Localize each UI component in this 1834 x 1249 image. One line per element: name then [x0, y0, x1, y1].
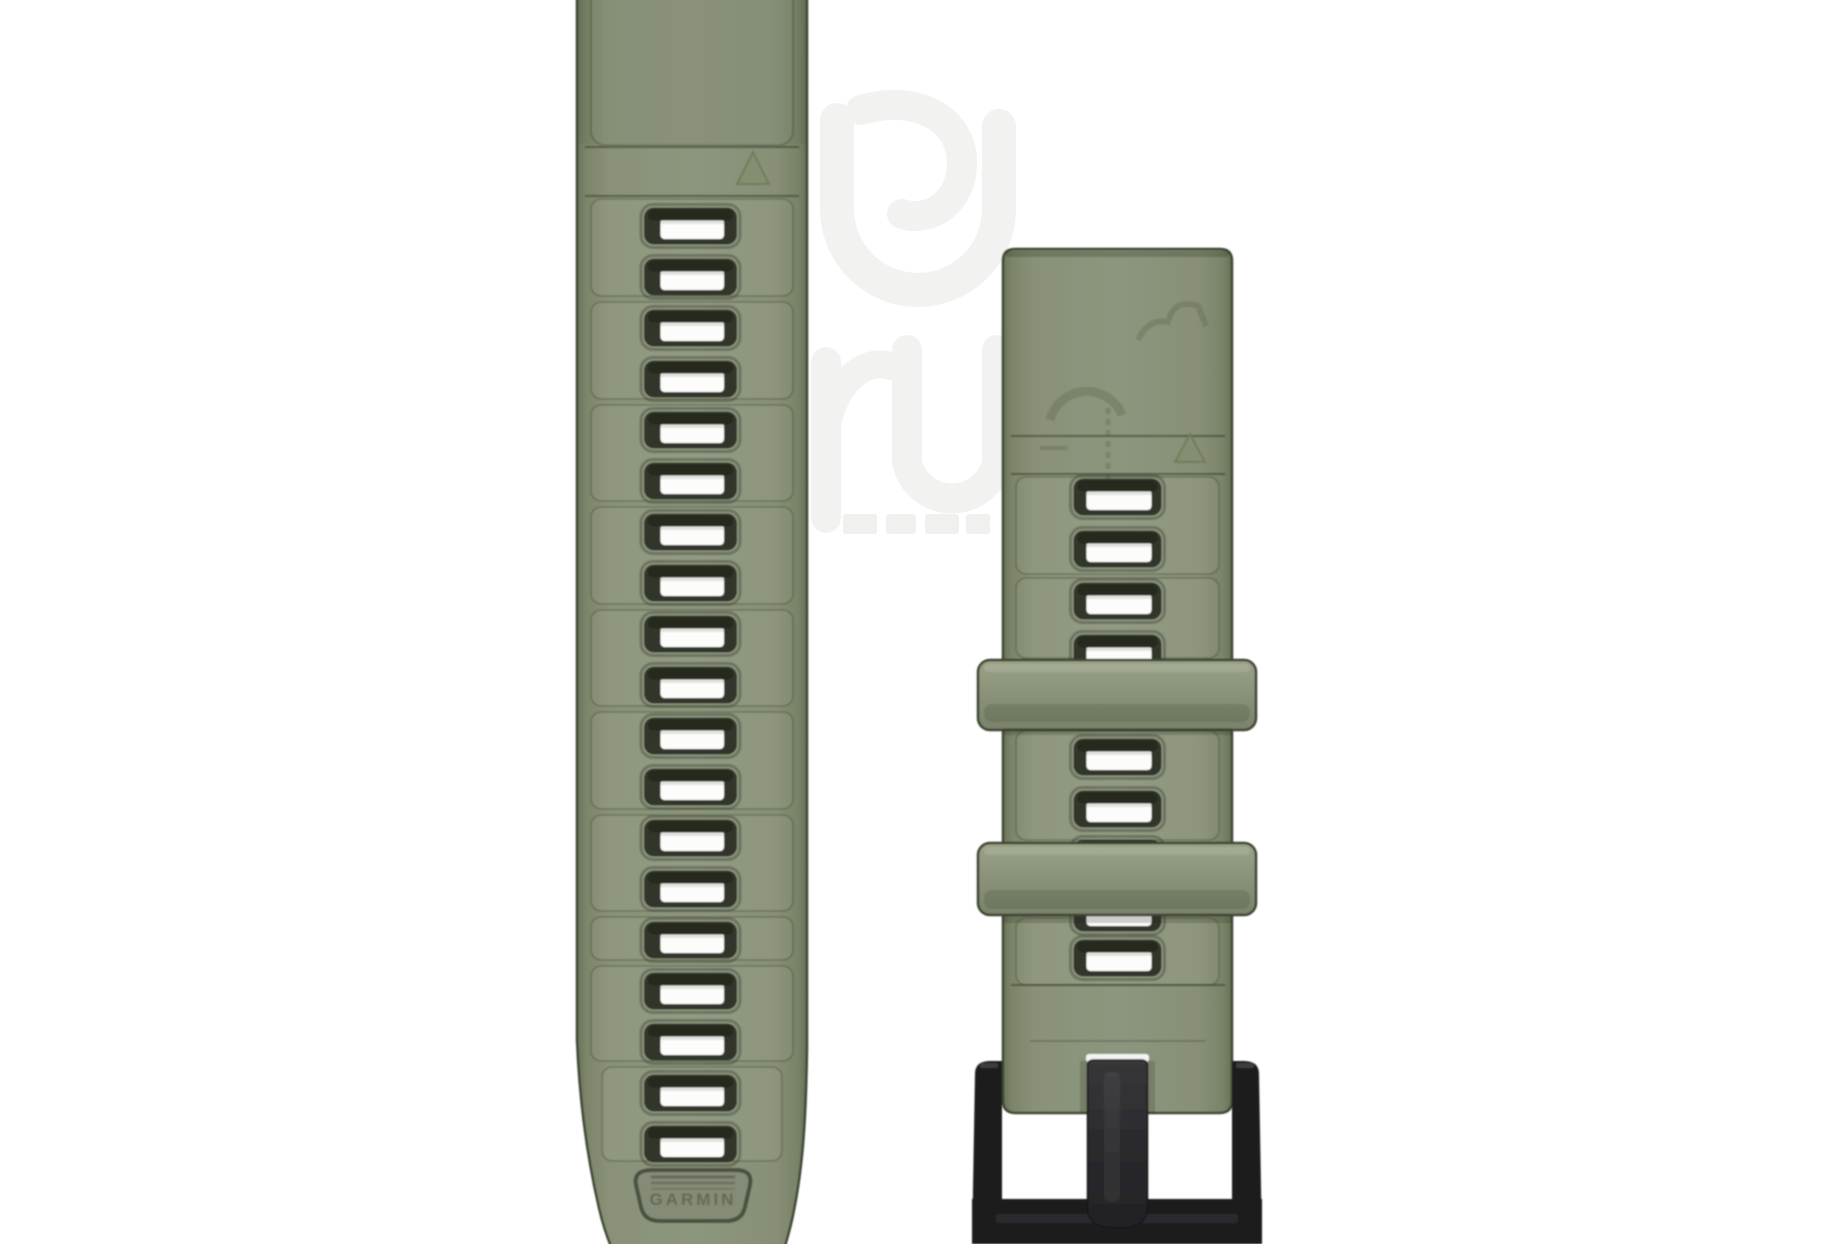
svg-text:GARMIN: GARMIN — [650, 1190, 737, 1209]
